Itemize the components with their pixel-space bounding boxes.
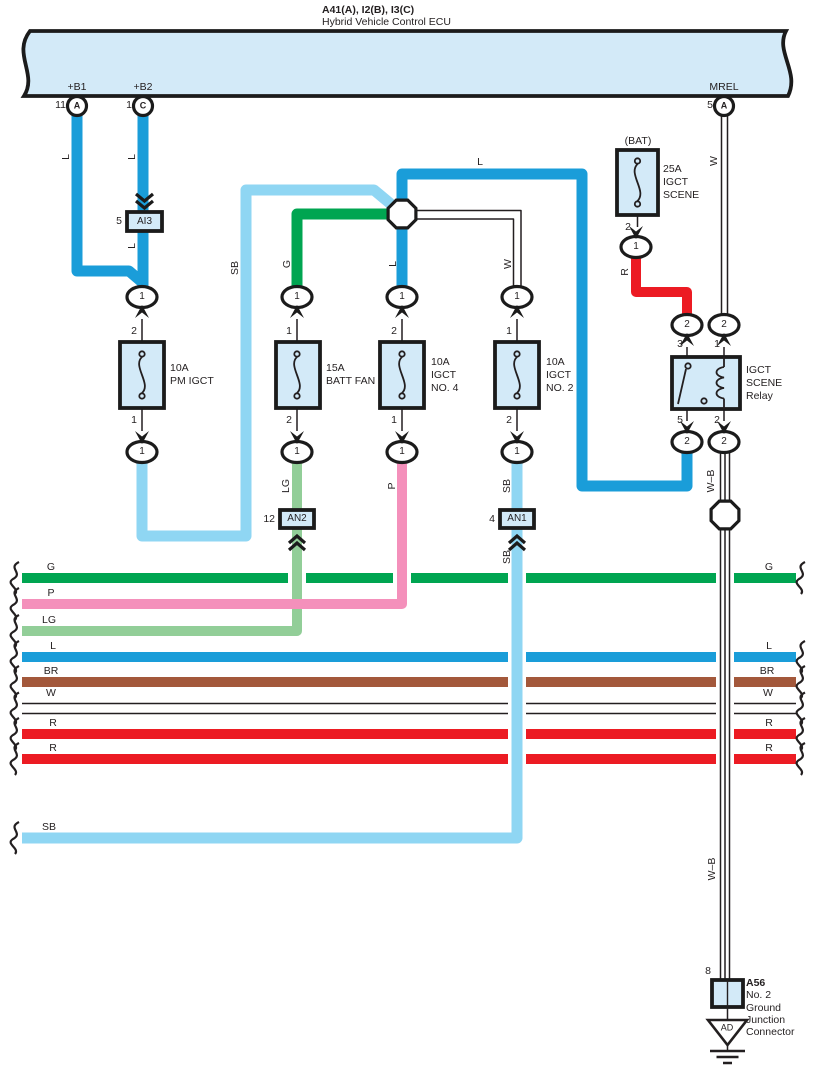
relay-pin-2: 2 <box>714 415 720 426</box>
wire-code-l-b1: L <box>61 154 72 160</box>
oval-number: 2 <box>684 320 690 330</box>
wire-code-wb-lower: W–B <box>707 858 718 881</box>
oval-number: 1 <box>294 447 300 457</box>
band-sb-left: SB <box>42 822 56 833</box>
oval-number: 2 <box>721 437 727 447</box>
wire-code-sb-an1-upper: SB <box>502 479 513 493</box>
ecu-cavity-b2: C <box>140 102 147 111</box>
wire-g <box>297 214 389 288</box>
block-ai3-pin: 5 <box>116 216 122 227</box>
oval-number: 1 <box>399 292 405 302</box>
block-an1-pin: 4 <box>489 514 495 525</box>
wire-w-oct <box>411 211 521 289</box>
fuse-no4-pin-bot: 1 <box>391 415 397 426</box>
band-r1-right: R <box>765 718 773 729</box>
fuse-pm-name: PM IGCT <box>170 376 214 387</box>
band-w-left: W <box>46 688 56 699</box>
wire-l <box>77 112 687 486</box>
connector-arrows <box>135 226 731 444</box>
band-lg-left: LG <box>42 615 56 626</box>
fuse-battfan-rating: 15A <box>326 363 345 374</box>
diagram-title-line2: Hybrid Vehicle Control ECU <box>322 17 451 28</box>
wire-code-sb-an1-lower: SB <box>502 550 513 564</box>
wire-code-lg: LG <box>281 479 292 493</box>
a56-name2: Ground <box>746 1003 781 1014</box>
fuse-no2-pin-top: 1 <box>506 326 512 337</box>
relay-pin-3: 3 <box>677 339 683 350</box>
fuse-scene-pin-bot: 2 <box>625 222 631 233</box>
block-an1-label: AN1 <box>507 514 526 524</box>
wire-code-l-top: L <box>477 157 483 168</box>
oval-number: 1 <box>514 292 520 302</box>
a56-name1: No. 2 <box>746 990 771 1001</box>
fuse-pm-pin-bot: 1 <box>131 415 137 426</box>
fuse-scene-name2: SCENE <box>663 190 699 201</box>
diagram-title-line1: A41(A), I2(B), I3(C) <box>322 5 414 16</box>
ecu-pin-b2-label: +B2 <box>134 82 153 93</box>
fuse-no4-name2: NO. 4 <box>431 383 458 394</box>
ground-mark-ad: AD <box>721 1024 734 1033</box>
fuse-no2-name2: NO. 2 <box>546 383 573 394</box>
oval-number: 1 <box>633 242 639 252</box>
fuse-scene-context: (BAT) <box>625 136 652 147</box>
junction-octagon-wb <box>711 501 739 529</box>
band-g-left: G <box>47 562 55 573</box>
band-p-left: P <box>47 588 54 599</box>
oval-number: 1 <box>139 292 145 302</box>
wire-code-g-branch: G <box>282 260 293 268</box>
band-r2-right: R <box>765 743 773 754</box>
fuse-battfan-pin-bot: 2 <box>286 415 292 426</box>
ecu-pin-mrel-number: 5 <box>707 100 713 111</box>
relay-name3: Relay <box>746 391 773 402</box>
band-br-right: BR <box>760 666 775 677</box>
ecu-pin-b1-number: 11 <box>55 100 66 111</box>
oval-number: 2 <box>684 437 690 447</box>
relay-pin-5: 5 <box>677 415 683 426</box>
relay-name2: SCENE <box>746 378 782 389</box>
ecu-pin-b2-number: 1 <box>126 100 132 111</box>
oval-number: 1 <box>139 447 145 457</box>
ecu-pin-mrel-label: MREL <box>709 82 738 93</box>
relay-name1: IGCT <box>746 365 771 376</box>
fuse-no2-pin-bot: 2 <box>506 415 512 426</box>
fuse-no4-rating: 10A <box>431 357 450 368</box>
band-r2-left: R <box>49 743 57 754</box>
oval-number: 2 <box>721 320 727 330</box>
fuse-scene-rating: 25A <box>663 164 682 175</box>
ground-symbol <box>710 1051 745 1063</box>
block-an2-pin: 12 <box>263 514 275 525</box>
oval-number: 1 <box>294 292 300 302</box>
band-l-right: L <box>766 641 772 652</box>
wire-code-l-branch: L <box>388 261 399 267</box>
relay-pin-1: 1 <box>714 339 720 350</box>
wire-w-mrel <box>722 113 728 314</box>
band-g-right: G <box>765 562 773 573</box>
ecu-cavity-mrel: A <box>721 102 728 111</box>
a56-name3: Junction <box>746 1015 785 1026</box>
fuse-no4-name1: IGCT <box>431 370 456 381</box>
wire-code-sb-riser: SB <box>230 261 241 275</box>
wire-code-w-branch: W <box>503 259 514 269</box>
block-an2-label: AN2 <box>287 514 306 524</box>
fuse-no2-name1: IGCT <box>546 370 571 381</box>
ecu-cavity-b1: A <box>74 102 81 111</box>
oval-number: 1 <box>399 447 405 457</box>
a56-code: A56 <box>746 978 765 989</box>
junction-octagon-main <box>388 200 416 228</box>
connector-ovals <box>127 237 739 463</box>
ecu-cavity-circles <box>68 97 734 116</box>
a56-pin: 8 <box>705 966 711 977</box>
wire-code-l-b2: L <box>127 154 138 160</box>
fuse-battfan-name: BATT FAN <box>326 376 375 387</box>
wire-code-wb-upper: W–B <box>706 470 717 493</box>
fuse-battfan-pin-top: 1 <box>286 326 292 337</box>
wire-code-w-mrel: W <box>709 156 720 166</box>
fuse-pm-pin-top: 2 <box>131 326 137 337</box>
fuse-pm-rating: 10A <box>170 363 189 374</box>
wire-code-p: P <box>387 482 398 489</box>
band-l-left: L <box>50 641 56 652</box>
wiring-diagram: A41(A), I2(B), I3(C) Hybrid Vehicle Cont… <box>0 0 817 1073</box>
block-ai3-label: AI3 <box>137 217 152 227</box>
wire-code-l-b2-lower: L <box>127 243 138 249</box>
oval-number: 1 <box>514 447 520 457</box>
band-br-left: BR <box>44 666 59 677</box>
ecu-pin-b1-label: +B1 <box>68 82 87 93</box>
fuse-no4-pin-top: 2 <box>391 326 397 337</box>
diagram-graphics <box>0 0 817 1073</box>
ground-junction <box>708 980 747 1063</box>
band-w-right: W <box>763 688 773 699</box>
band-r1-left: R <box>49 718 57 729</box>
fuse-no2-rating: 10A <box>546 357 565 368</box>
fuse-scene-name1: IGCT <box>663 177 688 188</box>
a56-name4: Connector <box>746 1027 794 1038</box>
wire-code-r: R <box>620 268 631 276</box>
wire-r <box>636 256 687 314</box>
